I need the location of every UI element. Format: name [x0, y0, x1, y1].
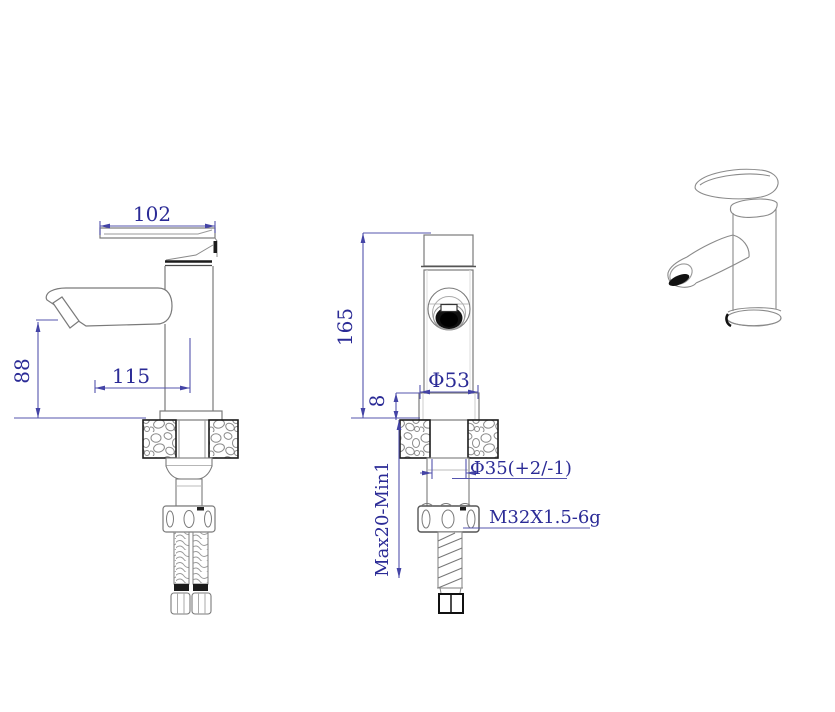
drawing-sheet: 102 115 88 — [0, 0, 835, 712]
dim-clamp-range: Max20-Min1 — [372, 420, 401, 578]
under-counter-assembly-side — [163, 458, 215, 614]
stud-end-nut — [439, 594, 463, 613]
iso-base — [726, 308, 781, 326]
front-handle — [421, 235, 476, 270]
dim-label-phi53: Φ53 — [428, 368, 470, 392]
side-view: 102 115 88 — [10, 202, 238, 614]
mounting-nut-side — [163, 506, 215, 532]
handle-edge-dark-mark — [214, 241, 218, 253]
iso-body — [733, 209, 776, 311]
dim-spout-reach: 115 — [95, 338, 190, 393]
dim-label-phi35: Φ35(+2/-1) — [470, 458, 572, 479]
under-counter-assembly-front — [418, 458, 479, 613]
side-base-flange — [160, 411, 222, 420]
front-view: 165 8 Φ53 Φ35(+2/-1) — [333, 233, 601, 613]
dim-label-88: 88 — [10, 358, 34, 383]
dim-label-165: 165 — [333, 308, 357, 346]
dim-label-max20-min1: Max20-Min1 — [372, 461, 393, 577]
dim-label-102: 102 — [133, 202, 171, 226]
dim-label-8: 8 — [365, 395, 389, 408]
faucet-technical-drawing: 102 115 88 — [0, 0, 835, 712]
dim-thread-spec: M32X1.5-6g — [463, 507, 601, 528]
hose-end-nut — [192, 593, 211, 614]
dim-base-plate-height: 8 — [365, 393, 420, 420]
counter-section-side — [143, 420, 238, 458]
dim-label-115: 115 — [112, 364, 150, 388]
dim-total-height: 165 — [333, 233, 431, 418]
iso-handle — [695, 169, 778, 217]
front-spout-outlet — [428, 288, 470, 330]
dim-label-m32: M32X1.5-6g — [489, 507, 601, 528]
hose-end-nut — [171, 593, 190, 614]
supply-hoses — [171, 532, 211, 614]
side-body — [165, 266, 213, 411]
front-base-flange — [419, 393, 479, 420]
counter-section-front — [400, 420, 498, 458]
side-spout — [46, 288, 172, 328]
iso-spout — [666, 235, 749, 288]
shank-washer — [166, 458, 212, 466]
threaded-stud — [437, 532, 463, 593]
side-handle-lever — [100, 228, 217, 266]
isometric-view — [666, 169, 781, 326]
